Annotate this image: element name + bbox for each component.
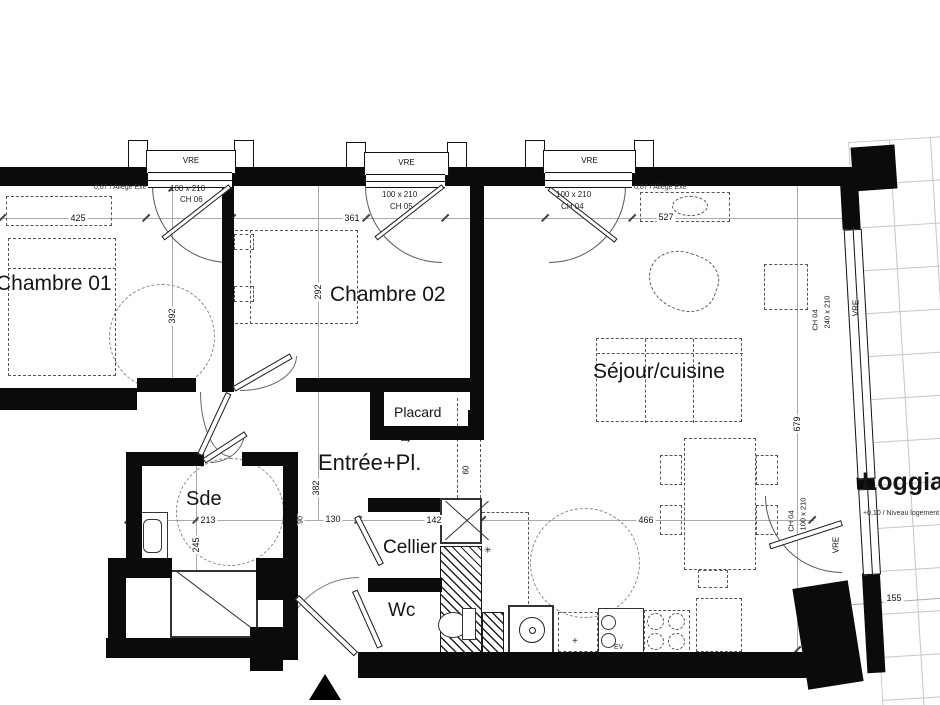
window-ref-text: CH 06 — [180, 195, 203, 204]
room-label-sejour: Séjour/cuisine — [593, 360, 725, 384]
bay-size-text: 240 x 210 — [823, 294, 832, 331]
placard-arrow-icon: → — [398, 430, 413, 447]
window-pier — [128, 140, 148, 170]
window-pier — [525, 140, 545, 170]
dim-sejour-width: 527 — [656, 212, 675, 222]
dim-sejour-low: 466 — [636, 515, 655, 525]
dishwasher — [558, 612, 598, 652]
bay-ref-text: CH 04 — [811, 307, 820, 332]
chair — [756, 505, 778, 535]
decor-rug — [640, 242, 726, 320]
room-label-cellier: Cellier — [383, 537, 437, 559]
technical-duct — [440, 498, 482, 544]
room-label-wc: Wc — [388, 600, 415, 622]
dim-ch01-width: 425 — [68, 213, 87, 223]
wall — [222, 185, 234, 392]
vre-label: VRE — [183, 156, 199, 165]
room-label-entree: Entrée+Pl. — [318, 450, 421, 476]
bed-chambre01 — [8, 238, 116, 376]
roller-shutter-box: VRE — [364, 152, 449, 176]
wall — [296, 378, 470, 392]
window-pier — [234, 140, 254, 170]
wall — [250, 627, 283, 671]
wall — [368, 498, 442, 512]
bed-pillow-line — [8, 268, 116, 269]
wall — [0, 388, 137, 410]
kitchen-zone-line — [482, 512, 528, 513]
kitchen-hob — [644, 610, 690, 655]
nightstand — [234, 234, 254, 250]
vre-label: VRE — [832, 535, 841, 555]
loggia-level-text: +0,10 / Niveau logement — [863, 510, 939, 517]
wall — [283, 452, 298, 660]
wall — [232, 167, 368, 186]
sink-label: EV — [614, 644, 623, 651]
dim-sejour-height: 679 — [792, 414, 802, 433]
dim-hall: 130 — [323, 514, 342, 524]
window-sill — [366, 174, 445, 188]
window-sill — [545, 172, 632, 188]
chair — [698, 570, 728, 588]
drain-marker: ✳ — [484, 545, 492, 556]
wall — [368, 578, 442, 592]
window-allege-text: 0,67 / Allège Exé — [94, 184, 147, 191]
roller-shutter-box: VRE — [146, 150, 236, 174]
door-swing-arc — [240, 356, 297, 391]
turning-circle — [530, 508, 640, 618]
room-label-chambre01: Chambre 01 — [0, 272, 112, 296]
dresser — [6, 196, 112, 226]
dim-ch02-width: 361 — [342, 213, 361, 223]
vre-label: VRE — [398, 158, 414, 167]
roller-shutter-box: VRE — [543, 150, 636, 174]
nightstand — [234, 286, 254, 302]
vre-label: VRE — [581, 156, 597, 165]
washing-machine — [508, 605, 554, 655]
chair — [660, 455, 682, 485]
dim-door-width: 90 — [298, 514, 305, 526]
fridge — [696, 598, 742, 652]
wall — [470, 185, 484, 440]
toilet-tank — [462, 608, 476, 640]
window-size-text: 100 x 210 — [382, 190, 417, 199]
turning-circle — [109, 284, 215, 390]
technical-duct-hatch — [482, 612, 504, 656]
window-ref-text: CH 05 — [390, 202, 413, 211]
washbasin — [138, 512, 168, 560]
dim-passage: 60 — [462, 464, 471, 477]
plus-marker: + — [572, 636, 578, 647]
dim-sde-height: 245 — [191, 535, 201, 554]
door-leaf — [354, 515, 384, 566]
loggia-door-ref-text: CH 04 — [787, 508, 796, 533]
vre-label: VRE — [852, 298, 861, 318]
window-pier — [634, 140, 654, 170]
dim-ch02-height: 292 — [313, 282, 323, 301]
kitchen-zone-line — [457, 398, 458, 498]
dim-sde-width: 213 — [198, 515, 217, 525]
chair — [756, 455, 778, 485]
window-size-text: 100 x 210 — [170, 184, 205, 193]
kitchen-zone-line — [528, 512, 529, 604]
entrance-arrow-icon — [309, 674, 341, 700]
room-label-sde: Sde — [186, 488, 222, 511]
chair — [660, 505, 682, 535]
window-ref-text: CH 04 — [561, 202, 584, 211]
wall — [137, 378, 196, 392]
shower-tray — [170, 570, 258, 638]
dining-table — [684, 438, 756, 570]
wall — [468, 410, 484, 440]
wall — [358, 652, 816, 678]
floor-plan: VRE VRE VRE 0,67 / Allège Exé 100 x 210 … — [0, 0, 940, 705]
armchair — [764, 264, 808, 310]
loggia-door-size-text: 100 x 210 — [799, 496, 808, 533]
dim-ch01-height: 392 — [167, 306, 177, 325]
dim-cellier-width: 142 — [424, 515, 443, 525]
wall — [256, 558, 298, 600]
room-label-placard: Placard — [394, 404, 441, 420]
room-label-loggia: Loggia — [862, 468, 940, 497]
window-allege-text: 0,67 / Allège Exé — [634, 184, 687, 191]
window-size-text: 100 x 210 — [556, 190, 591, 199]
dim-entree-height: 382 — [311, 478, 321, 497]
dim-loggia-width: 155 — [884, 593, 903, 603]
wall — [370, 426, 484, 440]
room-label-chambre02: Chambre 02 — [330, 283, 446, 307]
desk-chair — [672, 196, 708, 216]
wall — [445, 167, 545, 186]
